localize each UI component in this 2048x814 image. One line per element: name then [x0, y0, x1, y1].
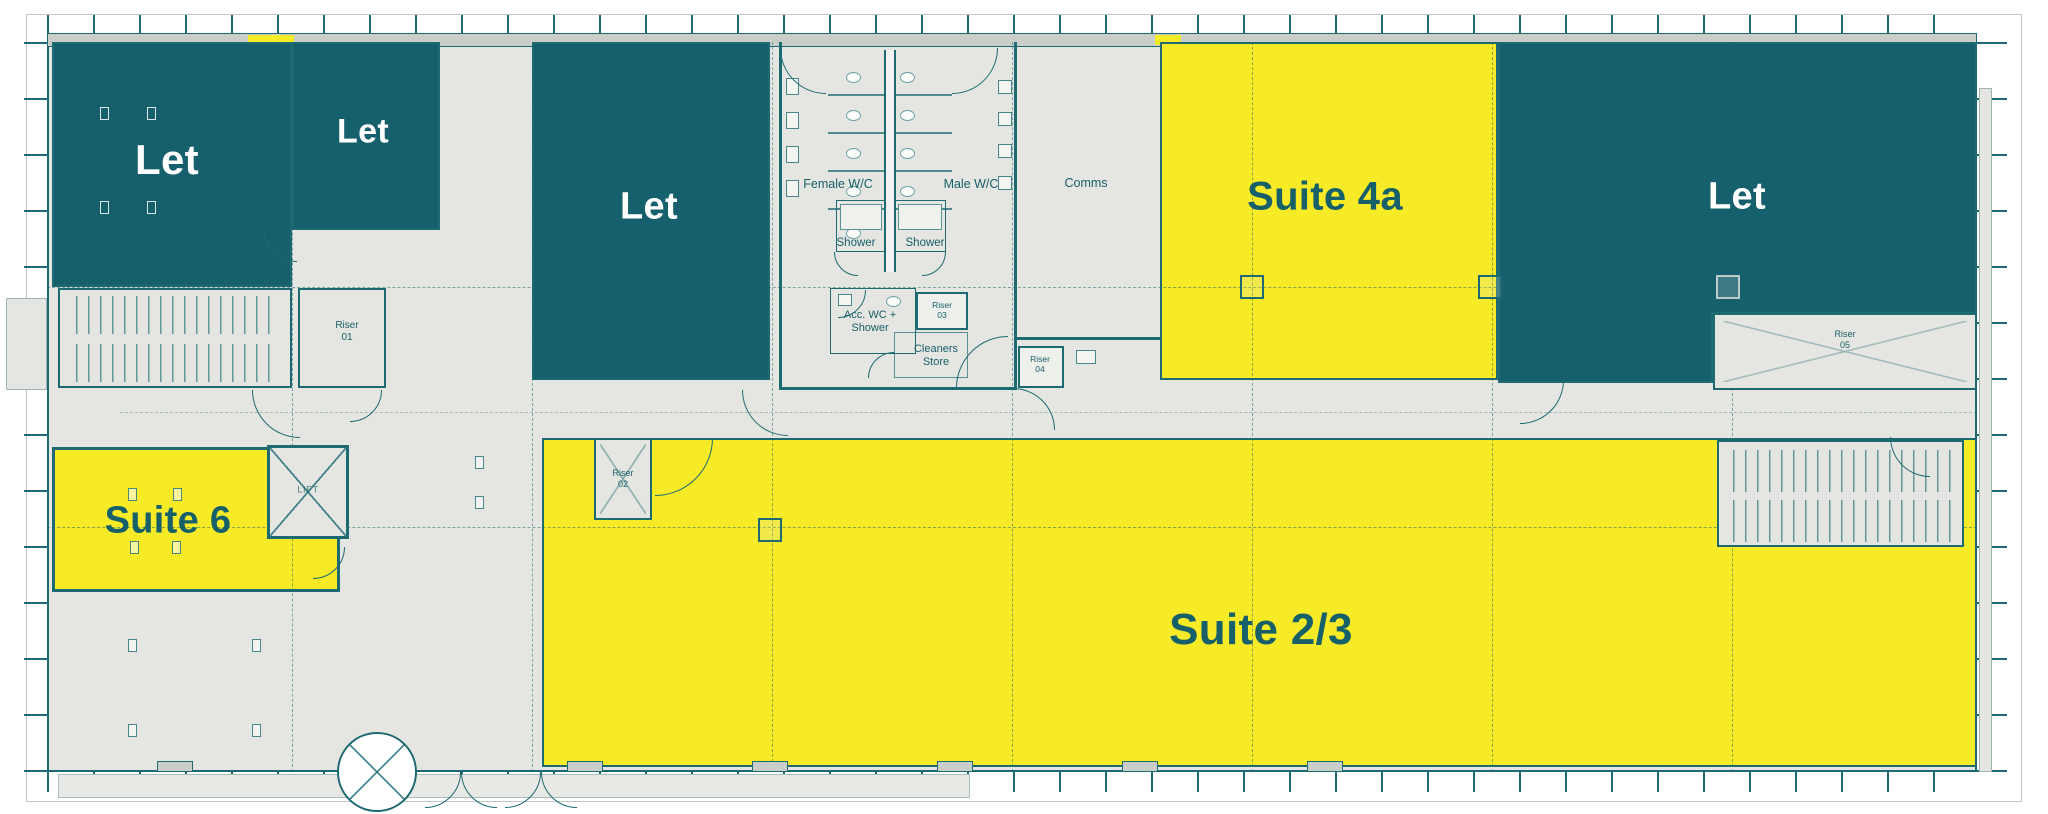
suite-label-let-d: Let — [1708, 176, 1766, 219]
urinal-icon — [998, 176, 1012, 190]
shower-tray — [840, 204, 882, 230]
region-let-d-arm — [1498, 312, 1713, 383]
label-shower-right: Shower — [906, 237, 945, 249]
basin-icon — [786, 112, 799, 129]
riser-05-name: Riser — [1834, 329, 1855, 340]
label-riser-02: Riser 02 — [612, 468, 633, 490]
toilet-icon — [846, 72, 861, 83]
fixture-marker — [475, 456, 484, 469]
fixture-marker — [130, 541, 139, 554]
stair-flight — [76, 296, 278, 334]
label-shower-left: Shower — [837, 237, 876, 249]
riser-01-number: 01 — [335, 332, 358, 344]
toilet-icon — [886, 296, 901, 307]
label-lift: LIFT — [297, 485, 319, 496]
riser-02-name: Riser — [612, 468, 633, 479]
label-comms: Comms — [1064, 176, 1107, 190]
suite-label-let-a2: Let — [337, 113, 389, 152]
suite-label-4a: Suite 4a — [1247, 175, 1403, 220]
room-riser-05 — [1713, 313, 1977, 390]
pilaster — [752, 761, 788, 772]
basin-icon — [786, 146, 799, 163]
riser-04-name: Riser — [1030, 354, 1050, 364]
cubicle-partition — [828, 132, 884, 134]
suite-label-2-3: Suite 2/3 — [1169, 605, 1353, 655]
fixture-marker — [252, 639, 261, 652]
grid-line-v7 — [1732, 42, 1733, 772]
revolving-door — [337, 732, 417, 812]
label-riser-05: Riser 05 — [1834, 329, 1855, 351]
grid-line-v5 — [1252, 42, 1253, 772]
riser-02-number: 02 — [612, 479, 633, 490]
riser-04-number: 04 — [1030, 364, 1050, 374]
label-riser-03: Riser 03 — [932, 300, 952, 320]
label-acc-wc-line2: Shower — [844, 322, 896, 335]
label-female-wc: Female W/C — [803, 177, 872, 191]
pilaster — [937, 761, 973, 772]
floor-plan: Let Let Let Suite 4a Let Suite 6 Suite 2… — [0, 0, 2048, 814]
external-stub-left — [6, 298, 47, 390]
shower-tray — [898, 204, 942, 230]
riser-03-number: 03 — [932, 310, 952, 320]
suite-label-6: Suite 6 — [105, 500, 232, 543]
cubicle-partition — [828, 94, 884, 96]
riser-01-name: Riser — [335, 320, 358, 332]
pilaster — [1122, 761, 1158, 772]
column-marker — [758, 518, 782, 542]
riser-03-name: Riser — [932, 300, 952, 310]
fixture-marker — [475, 496, 484, 509]
fixture-marker — [100, 107, 109, 120]
fixture-marker — [147, 201, 156, 214]
label-male-wc: Male W/C — [944, 177, 999, 191]
sink-counter — [1076, 350, 1096, 364]
fixture-marker — [252, 724, 261, 737]
wall-comms-bottom — [1015, 337, 1160, 340]
cubicle-partition — [896, 94, 952, 96]
toilet-icon — [846, 148, 861, 159]
toilet-icon — [900, 110, 915, 121]
label-cleaners-store: Cleaners Store — [914, 343, 958, 369]
fixture-marker — [147, 107, 156, 120]
urinal-icon — [998, 80, 1012, 94]
label-riser-01: Riser 01 — [335, 320, 358, 344]
stair-flight — [1733, 500, 1951, 542]
fixture-marker — [100, 201, 109, 214]
cubicle-partition — [828, 170, 884, 172]
stair-flight — [76, 344, 278, 382]
label-acc-wc-line1: Acc. WC + — [844, 309, 896, 322]
fixture-marker — [128, 639, 137, 652]
label-acc-wc: Acc. WC + Shower — [844, 309, 896, 335]
pilaster — [157, 761, 193, 772]
label-cleaners-line2: Store — [914, 356, 958, 369]
label-cleaners-line1: Cleaners — [914, 343, 958, 356]
grid-line-v6 — [1492, 42, 1493, 772]
cubicle-partition — [896, 170, 952, 172]
urinal-icon — [998, 144, 1012, 158]
external-strip-right — [1979, 88, 1992, 772]
urinal-icon — [998, 112, 1012, 126]
suite-label-let-b: Let — [620, 186, 678, 229]
riser-05-number: 05 — [1834, 340, 1855, 351]
wall-wc-left — [779, 42, 782, 390]
toilet-icon — [846, 110, 861, 121]
grid-line-v4 — [1012, 42, 1013, 772]
cubicle-partition — [896, 132, 952, 134]
column-marker — [1240, 275, 1264, 299]
fixture-marker — [128, 724, 137, 737]
column-marker — [1716, 275, 1740, 299]
label-riser-04: Riser 04 — [1030, 354, 1050, 374]
dimension-ticks-left — [24, 42, 47, 772]
pilaster — [567, 761, 603, 772]
fixture-marker — [172, 541, 181, 554]
toilet-icon — [900, 148, 915, 159]
dimension-ticks-top — [47, 15, 1977, 33]
toilet-icon — [900, 72, 915, 83]
basin-icon — [786, 180, 799, 197]
suite-label-let-a: Let — [135, 136, 199, 184]
grid-line-v2 — [532, 42, 533, 772]
toilet-icon — [900, 186, 915, 197]
pilaster — [1307, 761, 1343, 772]
stair-left — [58, 288, 292, 388]
column-marker — [1478, 275, 1502, 299]
